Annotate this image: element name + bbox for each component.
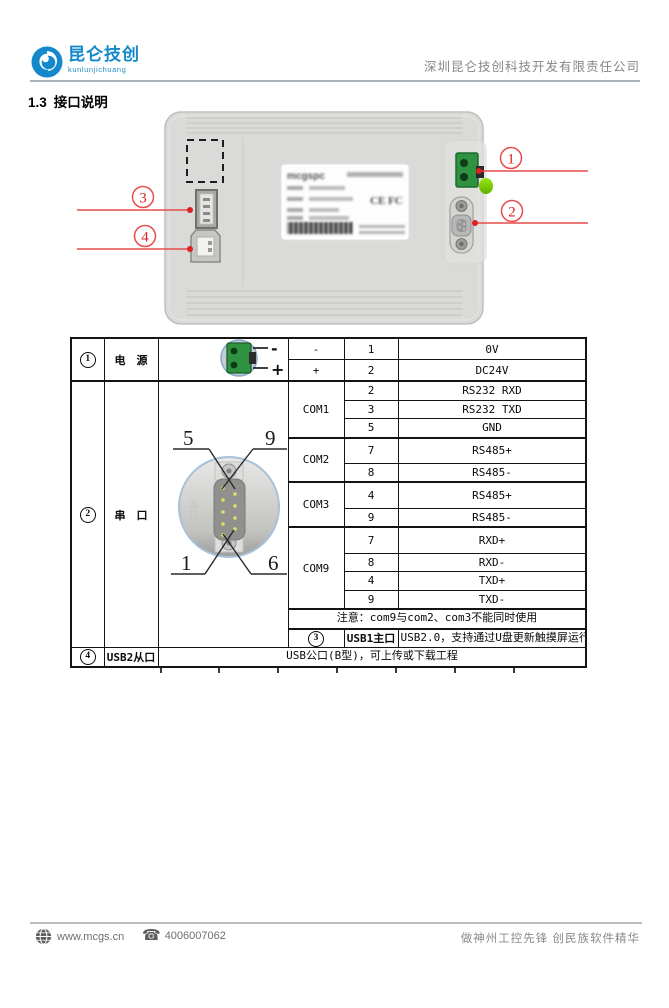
pin-number-cell: 9 — [344, 508, 398, 527]
label-logo-text: mcgspc — [287, 171, 325, 182]
power-name-cell: 电 源 — [104, 338, 158, 381]
logo-title: 昆仑技创 — [68, 46, 140, 63]
com-group-cell: COM3 — [288, 482, 344, 527]
device-figure: mcgspc CE FC — [60, 100, 605, 345]
footer-slogan: 做神州工控先锋 创民族软件精华 — [461, 930, 640, 946]
status-led — [479, 178, 493, 194]
pin-number-cell: 8 — [344, 463, 398, 482]
footer-phone: ☎ 4006007062 — [142, 928, 226, 943]
usb1-desc-cell: USB2.0，支持通过U盘更新触摸屏运行环境、工程、系统，以及数据导入和导出等功… — [398, 629, 586, 648]
db9-connector — [450, 197, 473, 253]
product-label: mcgspc CE FC — [281, 164, 409, 240]
power-connector-drawing-cell: - + — [158, 338, 288, 381]
pin-desc-cell: RXD+ — [398, 527, 586, 553]
pin-number-cell: 1 — [344, 338, 398, 360]
usb1-index-cell: 3 — [288, 629, 344, 648]
footer-website: www.mcgs.cn — [35, 928, 124, 945]
pin-desc-cell: RS485+ — [398, 438, 586, 464]
pin-number-cell: 8 — [344, 553, 398, 572]
pin-desc-cell: TXD- — [398, 590, 586, 609]
pin-desc-cell: 0V — [398, 338, 586, 360]
table-bottom-ticks — [70, 668, 585, 674]
pin-desc-cell: DC24V — [398, 360, 586, 382]
usb2-desc-cell: USB公口(B型)，可上传或下载工程 — [158, 648, 586, 667]
pin-desc-cell: RS485- — [398, 463, 586, 482]
callout-2: 2 — [472, 201, 588, 227]
db9-label-6: 6 — [268, 551, 279, 575]
db9-drawing-cell: COM — [158, 381, 288, 648]
pin-symbol-cell: - — [288, 338, 344, 360]
db9-com-etch: COM — [189, 499, 199, 525]
serial-name-cell: 串 口 — [104, 381, 158, 648]
callout-4-number: 4 — [141, 230, 149, 246]
usb-b-port — [191, 230, 220, 262]
db9-label-5: 5 — [183, 426, 194, 450]
table-row: 1 电 源 - + - 1 0V — [71, 338, 586, 360]
company-name: 深圳昆仑技创科技开发有限责任公司 — [424, 56, 640, 75]
usb2-index-cell: 4 — [71, 648, 104, 667]
pin-number-cell: 4 — [344, 482, 398, 508]
pin-number-cell: 5 — [344, 419, 398, 438]
interface-table: 1 电 源 - + - 1 0V — [70, 337, 587, 668]
pin-desc-cell: RS232 RXD — [398, 381, 586, 400]
pin-number-cell: 9 — [344, 590, 398, 609]
logo-subtitle: kunlunjichuang — [68, 66, 140, 74]
pin-number-cell: 7 — [344, 527, 398, 553]
pin-desc-cell: RS485+ — [398, 482, 586, 508]
usb-a-port — [196, 190, 217, 228]
pin-desc-cell: RS485- — [398, 508, 586, 527]
power-connector-drawing: - + — [161, 339, 287, 377]
serial-note-cell: 注意：com9与com2、com3不能同时使用 — [288, 609, 586, 629]
power-index-cell: 1 — [71, 338, 104, 381]
company-logo-text: 昆仑技创 kunlunjichuang — [68, 46, 140, 74]
globe-icon — [35, 928, 52, 945]
power-plus-label: + — [271, 360, 284, 377]
com-group-cell: COM9 — [288, 527, 344, 609]
table-row: 4 USB2从口 USB公口(B型)，可上传或下载工程 — [71, 648, 586, 667]
phone-icon: ☎ — [142, 928, 161, 943]
pin-number-cell: 4 — [344, 572, 398, 591]
device-back-panel: mcgspc CE FC — [165, 112, 493, 324]
callout-3-number: 3 — [139, 191, 147, 207]
phone-number: 4006007062 — [165, 930, 226, 942]
pin-desc-cell: TXD+ — [398, 572, 586, 591]
com-group-cell: COM1 — [288, 381, 344, 438]
pin-number-cell: 2 — [344, 381, 398, 400]
callout-2-number: 2 — [508, 205, 516, 221]
power-minus-label: - — [271, 339, 278, 358]
company-logo-icon — [30, 45, 64, 79]
usb2-name-cell: USB2从口 — [104, 648, 158, 667]
db9-drawing: COM — [161, 382, 287, 644]
footer-rule — [30, 922, 642, 924]
table-row: 2 串 口 COM — [71, 381, 586, 400]
pin-symbol-cell: + — [288, 360, 344, 382]
pin-number-cell: 7 — [344, 438, 398, 464]
label-cert-marks: CE FC — [370, 195, 403, 207]
com-group-cell: COM2 — [288, 438, 344, 483]
pin-number-cell: 2 — [344, 360, 398, 382]
pin-number-cell: 3 — [344, 400, 398, 419]
section-number: 1.3 — [28, 95, 47, 110]
label-barcode — [287, 222, 353, 234]
callout-1: 1 — [476, 148, 588, 175]
usb1-name-cell: USB1主口 — [344, 629, 398, 648]
pin-desc-cell: RS232 TXD — [398, 400, 586, 419]
header-rule — [30, 80, 640, 82]
pin-desc-cell: GND — [398, 419, 586, 438]
interface-table-wrap: 1 电 源 - + - 1 0V — [70, 337, 587, 668]
document-page: 昆仑技创 kunlunjichuang 深圳昆仑技创科技开发有限责任公司 1.3… — [0, 0, 669, 1008]
db9-label-9: 9 — [265, 426, 276, 450]
db9-label-1: 1 — [181, 551, 192, 575]
callout-1-number: 1 — [507, 152, 515, 168]
pin-desc-cell: RXD- — [398, 553, 586, 572]
serial-index-cell: 2 — [71, 381, 104, 648]
website-url: www.mcgs.cn — [57, 931, 124, 943]
